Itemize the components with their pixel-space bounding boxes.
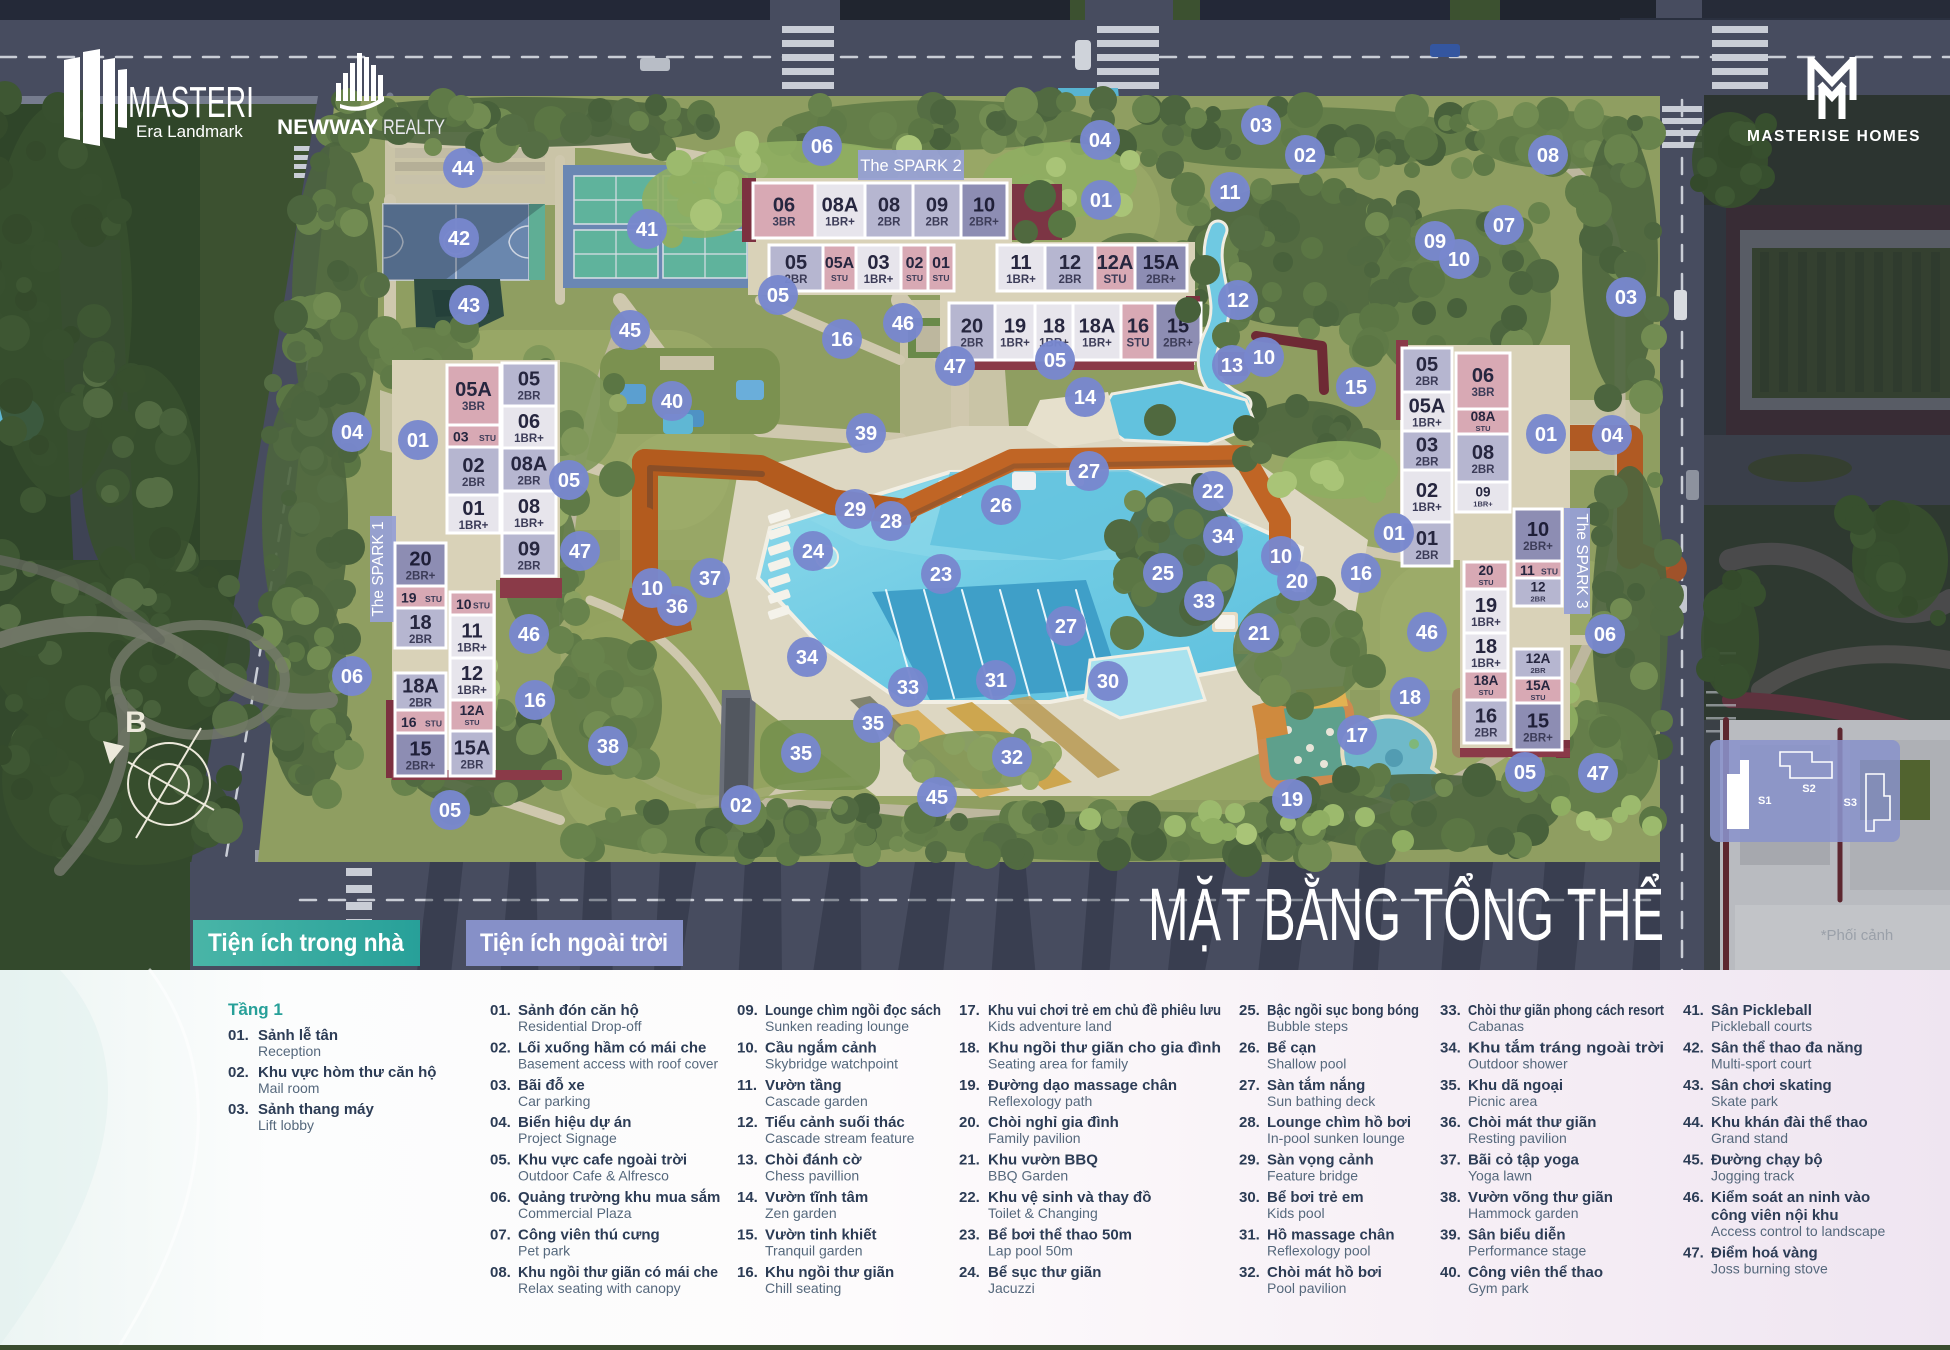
svg-text:Bãi cỏ tập yoga: Bãi cỏ tập yoga <box>1468 1152 1580 1169</box>
svg-text:43: 43 <box>458 295 480 317</box>
svg-text:10.: 10. <box>737 1039 758 1056</box>
svg-text:09.: 09. <box>737 1002 758 1019</box>
svg-text:18A: 18A <box>402 676 439 698</box>
svg-text:Khu tắm tráng ngoài trời: Khu tắm tráng ngoài trời <box>1468 1038 1664 1056</box>
svg-text:Hồ massage chân: Hồ massage chân <box>1267 1226 1395 1243</box>
svg-text:05.: 05. <box>490 1152 511 1169</box>
svg-text:34.: 34. <box>1440 1039 1461 1056</box>
svg-text:04: 04 <box>1089 130 1112 152</box>
svg-text:1BR+: 1BR+ <box>825 217 855 229</box>
svg-text:Sân thể thao đa năng: Sân thể thao đa năng <box>1711 1039 1863 1056</box>
svg-text:47: 47 <box>1587 763 1609 785</box>
svg-text:STU: STU <box>1531 693 1546 702</box>
svg-text:15A: 15A <box>1526 678 1551 693</box>
svg-text:Basement access with roof cove: Basement access with roof cover <box>518 1055 718 1071</box>
svg-text:2BR: 2BR <box>1471 464 1495 476</box>
svg-text:05A: 05A <box>825 255 855 272</box>
svg-text:The SPARK 3: The SPARK 3 <box>1573 513 1590 608</box>
svg-text:2BR: 2BR <box>1415 376 1439 388</box>
svg-text:26: 26 <box>990 495 1012 517</box>
svg-text:17: 17 <box>1346 725 1368 747</box>
svg-text:43.: 43. <box>1683 1077 1704 1094</box>
svg-text:29: 29 <box>844 499 866 521</box>
svg-text:42.: 42. <box>1683 1039 1704 1056</box>
svg-text:06: 06 <box>518 411 540 433</box>
svg-text:2BR: 2BR <box>409 634 433 646</box>
svg-text:02: 02 <box>730 795 752 817</box>
svg-text:15: 15 <box>409 739 431 761</box>
svg-text:Công viên thể thao: Công viên thể thao <box>1468 1264 1603 1281</box>
svg-text:03: 03 <box>453 429 469 445</box>
svg-text:19.: 19. <box>959 1077 980 1094</box>
svg-text:1BR+: 1BR+ <box>1412 418 1442 430</box>
svg-text:Cascade garden: Cascade garden <box>765 1093 868 1109</box>
svg-text:23: 23 <box>930 564 952 586</box>
svg-text:08.: 08. <box>490 1264 511 1281</box>
svg-text:45: 45 <box>619 320 641 342</box>
svg-text:Lounge chìm hồ bơi: Lounge chìm hồ bơi <box>1267 1114 1411 1131</box>
svg-text:Pet park: Pet park <box>518 1242 571 1258</box>
svg-text:Quảng trường khu mua sắm: Quảng trường khu mua sắm <box>518 1188 720 1206</box>
svg-text:STU: STU <box>1476 424 1491 433</box>
svg-text:01: 01 <box>1416 528 1438 550</box>
svg-text:STU: STU <box>1104 274 1127 286</box>
svg-text:35: 35 <box>862 713 884 735</box>
svg-text:3BR: 3BR <box>462 401 486 413</box>
svg-text:10: 10 <box>1448 249 1470 271</box>
svg-text:Chòi nghỉ gia đình: Chòi nghỉ gia đình <box>988 1114 1119 1131</box>
svg-text:Khu vực hòm thư căn hộ: Khu vực hòm thư căn hộ <box>258 1064 436 1081</box>
svg-text:STU: STU <box>1127 338 1150 350</box>
svg-text:16: 16 <box>1127 316 1149 338</box>
svg-text:07: 07 <box>1493 215 1515 237</box>
svg-text:Tiện ích trong nhà: Tiện ích trong nhà <box>208 929 404 957</box>
svg-text:Skate park: Skate park <box>1711 1093 1779 1109</box>
svg-text:20.: 20. <box>959 1114 980 1131</box>
svg-text:11: 11 <box>1219 182 1240 204</box>
svg-text:Vườn võng thư giãn: Vườn võng thư giãn <box>1468 1189 1613 1206</box>
svg-text:47.: 47. <box>1683 1244 1704 1261</box>
svg-text:STU: STU <box>425 719 442 729</box>
svg-text:15: 15 <box>1527 711 1549 733</box>
svg-text:*Phối cảnh: *Phối cảnh <box>1821 927 1894 944</box>
svg-text:Yoga lawn: Yoga lawn <box>1468 1168 1532 1184</box>
svg-text:Jacuzzi: Jacuzzi <box>988 1280 1035 1296</box>
svg-text:03: 03 <box>1250 115 1272 137</box>
svg-text:05: 05 <box>558 470 580 492</box>
svg-text:08A: 08A <box>1471 409 1496 424</box>
svg-text:25: 25 <box>1152 563 1174 585</box>
svg-text:STU: STU <box>1541 567 1558 577</box>
svg-text:03: 03 <box>867 252 889 274</box>
svg-text:Chess pavillion: Chess pavillion <box>765 1168 859 1184</box>
svg-text:Cabanas: Cabanas <box>1468 1018 1524 1034</box>
svg-text:MASTERI: MASTERI <box>128 78 254 127</box>
svg-text:The SPARK 2: The SPARK 2 <box>860 157 962 175</box>
svg-text:Multi-sport court: Multi-sport court <box>1711 1055 1811 1071</box>
svg-text:35.: 35. <box>1440 1077 1461 1094</box>
svg-text:Grand stand: Grand stand <box>1711 1130 1788 1146</box>
svg-text:24: 24 <box>802 541 825 563</box>
svg-text:02: 02 <box>462 455 484 477</box>
svg-text:Bể bơi trẻ em: Bể bơi trẻ em <box>1267 1189 1364 1206</box>
svg-text:1BR+: 1BR+ <box>514 518 544 530</box>
svg-text:2BR: 2BR <box>517 476 541 488</box>
svg-text:05: 05 <box>767 285 789 307</box>
svg-text:Kids pool: Kids pool <box>1267 1205 1325 1221</box>
svg-text:2BR: 2BR <box>1058 274 1082 286</box>
svg-text:08: 08 <box>1472 442 1494 464</box>
svg-text:01.: 01. <box>490 1002 511 1019</box>
svg-text:1BR+: 1BR+ <box>1000 338 1030 350</box>
svg-text:Khu ngồi thư giãn cho gia đình: Khu ngồi thư giãn cho gia đình <box>988 1039 1221 1056</box>
svg-text:36.: 36. <box>1440 1114 1461 1131</box>
svg-text:STU: STU <box>1479 578 1494 587</box>
svg-text:23.: 23. <box>959 1226 980 1243</box>
svg-text:32.: 32. <box>1239 1264 1260 1281</box>
svg-text:30: 30 <box>1097 671 1119 693</box>
svg-text:Bể bơi thể thao 50m: Bể bơi thể thao 50m <box>988 1226 1132 1243</box>
svg-text:08: 08 <box>1537 145 1559 167</box>
svg-text:18: 18 <box>1475 636 1497 658</box>
svg-text:1BR+: 1BR+ <box>459 520 489 532</box>
svg-text:05: 05 <box>439 800 461 822</box>
svg-text:1BR+: 1BR+ <box>1412 502 1442 514</box>
svg-text:Sân chơi skating: Sân chơi skating <box>1711 1077 1832 1094</box>
svg-text:2BR+: 2BR+ <box>406 571 436 583</box>
svg-text:19: 19 <box>1004 316 1026 338</box>
svg-text:18: 18 <box>1399 687 1421 709</box>
svg-text:Era Landmark: Era Landmark <box>136 122 243 141</box>
svg-text:05A: 05A <box>1409 396 1446 418</box>
svg-text:Pool pavilion: Pool pavilion <box>1267 1280 1346 1296</box>
svg-text:44: 44 <box>452 158 475 180</box>
svg-text:MẶT BẰNG TỔNG THỂ: MẶT BẰNG TỔNG THỂ <box>1148 873 1664 956</box>
svg-text:NEWWAY: NEWWAY <box>277 116 378 139</box>
svg-text:41.: 41. <box>1683 1002 1704 1019</box>
svg-text:13: 13 <box>1221 355 1243 377</box>
svg-text:33: 33 <box>1193 591 1215 613</box>
svg-text:03: 03 <box>1416 435 1438 457</box>
svg-text:01.: 01. <box>228 1027 249 1044</box>
svg-text:14: 14 <box>1074 387 1097 409</box>
svg-text:05: 05 <box>1416 354 1438 376</box>
svg-text:33.: 33. <box>1440 1002 1461 1019</box>
svg-text:Vườn tinh khiết: Vườn tinh khiết <box>765 1226 877 1243</box>
svg-text:1BR+: 1BR+ <box>514 433 544 445</box>
svg-text:Bể cạn: Bể cạn <box>1267 1039 1316 1056</box>
svg-text:2BR: 2BR <box>925 217 949 229</box>
svg-text:2BR: 2BR <box>462 477 486 489</box>
svg-text:16: 16 <box>1350 563 1372 585</box>
svg-text:2BR+: 2BR+ <box>1146 274 1176 286</box>
svg-text:16.: 16. <box>737 1264 758 1281</box>
svg-text:12A: 12A <box>1526 651 1551 666</box>
svg-text:Skybridge watchpoint: Skybridge watchpoint <box>765 1055 898 1071</box>
svg-text:15.: 15. <box>737 1226 758 1243</box>
svg-text:Performance stage: Performance stage <box>1468 1242 1586 1258</box>
svg-text:18: 18 <box>409 612 431 634</box>
svg-text:11: 11 <box>1520 562 1535 578</box>
svg-text:1BR+: 1BR+ <box>1473 500 1493 509</box>
svg-text:2BR+: 2BR+ <box>1523 541 1553 553</box>
svg-text:2BR+: 2BR+ <box>969 217 999 229</box>
svg-text:2BR: 2BR <box>1530 595 1546 604</box>
svg-text:Sân biểu diễn: Sân biểu diễn <box>1468 1226 1566 1243</box>
svg-text:2BR+: 2BR+ <box>406 761 436 773</box>
svg-text:2BR: 2BR <box>1415 457 1439 469</box>
svg-text:05: 05 <box>518 369 540 391</box>
svg-text:12.: 12. <box>737 1114 758 1131</box>
svg-text:Commercial Plaza: Commercial Plaza <box>518 1205 632 1221</box>
svg-text:2BR: 2BR <box>1415 550 1439 562</box>
svg-text:33: 33 <box>897 677 919 699</box>
svg-text:04: 04 <box>1601 425 1624 447</box>
svg-text:STU: STU <box>479 433 496 443</box>
svg-text:Sảnh lễ tân: Sảnh lễ tân <box>258 1027 338 1044</box>
svg-text:Kiểm soát an ninh vào: Kiểm soát an ninh vào <box>1711 1189 1870 1206</box>
svg-text:Chòi mát thư giãn: Chòi mát thư giãn <box>1468 1114 1596 1131</box>
svg-text:Khu ngồi thư giãn: Khu ngồi thư giãn <box>765 1264 894 1281</box>
svg-text:16: 16 <box>524 690 546 712</box>
svg-text:19: 19 <box>1281 789 1303 811</box>
svg-text:1BR+: 1BR+ <box>1471 617 1501 629</box>
svg-text:10: 10 <box>1253 347 1275 369</box>
svg-text:27: 27 <box>1078 461 1100 483</box>
svg-text:1BR+: 1BR+ <box>457 685 487 697</box>
svg-text:2BR+: 2BR+ <box>1523 733 1553 745</box>
svg-text:15A: 15A <box>1143 252 1180 274</box>
svg-text:Chòi thư giãn phong cách resor: Chòi thư giãn phong cách resort <box>1468 1002 1664 1019</box>
svg-text:Khu vệ sinh và thay đồ: Khu vệ sinh và thay đồ <box>988 1189 1151 1206</box>
svg-text:Tiểu cảnh suối thác: Tiểu cảnh suối thác <box>765 1114 905 1131</box>
svg-text:01: 01 <box>1535 424 1557 446</box>
svg-text:STU: STU <box>1479 688 1494 697</box>
svg-text:Chill seating: Chill seating <box>765 1280 841 1296</box>
svg-text:01: 01 <box>1383 523 1405 545</box>
svg-text:Bubble steps: Bubble steps <box>1267 1018 1348 1034</box>
svg-text:46: 46 <box>518 624 540 646</box>
svg-text:Khu dã ngoại: Khu dã ngoại <box>1468 1077 1563 1094</box>
svg-text:Vườn tĩnh tâm: Vườn tĩnh tâm <box>765 1189 868 1206</box>
svg-text:Lối xuống hầm có mái che: Lối xuống hầm có mái che <box>518 1039 706 1056</box>
svg-text:Pickleball courts: Pickleball courts <box>1711 1018 1812 1034</box>
svg-text:12A: 12A <box>460 703 485 718</box>
svg-text:Khu vực cafe ngoài trời: Khu vực cafe ngoài trời <box>518 1152 687 1169</box>
svg-text:Sun bathing deck: Sun bathing deck <box>1267 1093 1376 1109</box>
svg-text:02.: 02. <box>228 1064 249 1081</box>
svg-text:công viên nội khu: công viên nội khu <box>1711 1207 1839 1224</box>
svg-text:35: 35 <box>790 743 812 765</box>
svg-text:18.: 18. <box>959 1039 980 1056</box>
svg-text:Sảnh đón căn hộ: Sảnh đón căn hộ <box>518 1002 639 1019</box>
svg-text:20: 20 <box>961 316 983 338</box>
svg-text:Điểm hoá vàng: Điểm hoá vàng <box>1711 1244 1818 1261</box>
svg-text:16: 16 <box>831 329 853 351</box>
svg-text:06: 06 <box>773 195 795 217</box>
svg-text:2BR: 2BR <box>1474 728 1498 740</box>
svg-text:06: 06 <box>811 136 833 158</box>
svg-text:Đường dạo massage chân: Đường dạo massage chân <box>988 1077 1177 1094</box>
svg-text:05A: 05A <box>455 379 492 401</box>
svg-text:02.: 02. <box>490 1039 511 1056</box>
svg-text:36: 36 <box>666 596 688 618</box>
svg-text:Bãi đỗ xe: Bãi đỗ xe <box>518 1077 585 1094</box>
svg-text:37.: 37. <box>1440 1152 1461 1169</box>
svg-text:47: 47 <box>569 541 591 563</box>
svg-text:Công viên thú cưng: Công viên thú cưng <box>518 1226 660 1243</box>
svg-text:04: 04 <box>341 422 364 444</box>
svg-text:Hammock garden: Hammock garden <box>1468 1205 1579 1221</box>
svg-text:Relax seating with canopy: Relax seating with canopy <box>518 1280 681 1296</box>
svg-text:Lift lobby: Lift lobby <box>258 1117 314 1133</box>
svg-text:Toilet & Changing: Toilet & Changing <box>988 1205 1098 1221</box>
svg-text:40: 40 <box>661 391 683 413</box>
svg-text:06: 06 <box>341 666 363 688</box>
svg-text:Reflexology path: Reflexology path <box>988 1093 1092 1109</box>
svg-text:Sunken reading lounge: Sunken reading lounge <box>765 1018 909 1034</box>
svg-text:Feature bridge: Feature bridge <box>1267 1168 1358 1184</box>
svg-text:1BR+: 1BR+ <box>864 274 894 286</box>
svg-text:Cầu ngắm cảnh: Cầu ngắm cảnh <box>765 1038 877 1056</box>
svg-text:STU: STU <box>906 273 923 283</box>
svg-text:18A: 18A <box>1474 673 1499 688</box>
svg-text:BBQ Garden: BBQ Garden <box>988 1168 1068 1184</box>
svg-text:2BR: 2BR <box>877 217 901 229</box>
svg-text:Shallow pool: Shallow pool <box>1267 1055 1346 1071</box>
svg-text:01: 01 <box>1090 190 1112 212</box>
svg-text:STU: STU <box>465 718 480 727</box>
svg-text:09: 09 <box>926 195 948 217</box>
svg-text:Lounge chìm ngồi đọc sách: Lounge chìm ngồi đọc sách <box>765 1002 941 1019</box>
svg-text:12: 12 <box>1227 290 1249 312</box>
svg-text:15: 15 <box>1345 377 1367 399</box>
svg-text:03: 03 <box>1615 287 1637 309</box>
svg-text:10: 10 <box>456 596 472 612</box>
svg-text:20: 20 <box>409 549 431 571</box>
svg-text:10: 10 <box>973 195 995 217</box>
svg-text:11.: 11. <box>737 1077 757 1094</box>
svg-text:1BR+: 1BR+ <box>457 643 487 655</box>
svg-text:Reception: Reception <box>258 1043 321 1059</box>
svg-text:2BR: 2BR <box>1530 666 1546 675</box>
svg-text:03.: 03. <box>228 1101 249 1118</box>
svg-text:01: 01 <box>407 430 429 452</box>
svg-text:Khu vườn BBQ: Khu vườn BBQ <box>988 1152 1098 1169</box>
svg-text:08A: 08A <box>511 454 548 476</box>
svg-text:Residential Drop-off: Residential Drop-off <box>518 1018 642 1034</box>
svg-text:Bể sục thư giãn: Bể sục thư giãn <box>988 1264 1101 1281</box>
svg-text:20: 20 <box>1286 571 1308 593</box>
svg-text:08: 08 <box>878 195 900 217</box>
svg-text:The SPARK 1: The SPARK 1 <box>370 521 387 616</box>
svg-text:34: 34 <box>1212 526 1235 548</box>
svg-text:13.: 13. <box>737 1152 758 1169</box>
svg-text:32: 32 <box>1001 747 1023 769</box>
svg-text:31.: 31. <box>1239 1226 1260 1243</box>
svg-text:46: 46 <box>1416 622 1438 644</box>
svg-text:2BR: 2BR <box>960 338 984 350</box>
svg-text:08A: 08A <box>822 195 859 217</box>
svg-text:02: 02 <box>1416 480 1438 502</box>
svg-text:03.: 03. <box>490 1077 511 1094</box>
svg-text:STU: STU <box>831 273 848 283</box>
svg-text:20: 20 <box>1478 563 1493 578</box>
svg-text:Cascade stream feature: Cascade stream feature <box>765 1130 915 1146</box>
svg-text:2BR: 2BR <box>460 760 484 772</box>
svg-text:12: 12 <box>1530 580 1545 595</box>
svg-text:05: 05 <box>785 252 807 274</box>
svg-text:2BR: 2BR <box>517 391 541 403</box>
svg-text:12: 12 <box>461 663 483 685</box>
svg-text:1BR+: 1BR+ <box>1006 274 1036 286</box>
svg-text:15A: 15A <box>454 738 491 760</box>
svg-text:Chòi mát hồ bơi: Chòi mát hồ bơi <box>1267 1264 1382 1281</box>
svg-text:05: 05 <box>1514 762 1536 784</box>
svg-text:S1: S1 <box>1758 795 1771 807</box>
svg-text:Khu khán đài thể thao: Khu khán đài thể thao <box>1711 1114 1868 1131</box>
svg-text:Sàn tắm nắng: Sàn tắm nắng <box>1267 1076 1365 1094</box>
svg-text:Family pavilion: Family pavilion <box>988 1130 1081 1146</box>
svg-text:Tiện ích ngoài trời: Tiện ích ngoài trời <box>480 929 668 957</box>
svg-text:25.: 25. <box>1239 1002 1260 1019</box>
svg-text:Vườn tầng: Vườn tầng <box>765 1077 842 1094</box>
svg-text:22: 22 <box>1202 481 1224 503</box>
svg-text:Sảnh thang máy: Sảnh thang máy <box>258 1101 375 1118</box>
svg-text:19: 19 <box>1475 595 1497 617</box>
svg-text:14.: 14. <box>737 1189 758 1206</box>
svg-text:27.: 27. <box>1239 1077 1260 1094</box>
svg-text:1BR+: 1BR+ <box>1471 658 1501 670</box>
svg-text:45: 45 <box>926 787 948 809</box>
svg-text:Outdoor Cafe & Alfresco: Outdoor Cafe & Alfresco <box>518 1168 669 1184</box>
svg-text:Zen garden: Zen garden <box>765 1205 837 1221</box>
svg-text:3BR: 3BR <box>1471 387 1495 399</box>
svg-text:24.: 24. <box>959 1264 980 1281</box>
svg-text:09: 09 <box>1475 485 1490 500</box>
svg-text:S2: S2 <box>1802 783 1815 795</box>
svg-text:Reflexology pool: Reflexology pool <box>1267 1242 1371 1258</box>
svg-text:46.: 46. <box>1683 1189 1704 1206</box>
svg-text:45.: 45. <box>1683 1152 1704 1169</box>
svg-text:2BR+: 2BR+ <box>1163 338 1193 350</box>
svg-text:STU: STU <box>473 601 490 611</box>
svg-text:26.: 26. <box>1239 1039 1260 1056</box>
svg-text:06.: 06. <box>490 1189 511 1206</box>
svg-text:38: 38 <box>597 736 619 758</box>
svg-text:21.: 21. <box>959 1152 980 1169</box>
svg-text:12: 12 <box>1059 252 1081 274</box>
svg-text:STU: STU <box>425 594 442 604</box>
svg-text:STU: STU <box>933 273 950 283</box>
svg-text:Tầng 1: Tầng 1 <box>228 1000 283 1019</box>
svg-text:10: 10 <box>1527 519 1549 541</box>
svg-text:29.: 29. <box>1239 1152 1260 1169</box>
svg-text:16: 16 <box>1475 706 1497 728</box>
svg-text:2BR: 2BR <box>409 698 433 710</box>
svg-text:S3: S3 <box>1844 797 1857 809</box>
svg-text:41: 41 <box>636 219 658 241</box>
svg-text:2BR: 2BR <box>517 561 541 573</box>
svg-text:Seating area for family: Seating area for family <box>988 1055 1128 1071</box>
svg-text:11: 11 <box>1010 252 1031 274</box>
svg-text:Đường chạy bộ: Đường chạy bộ <box>1711 1152 1823 1169</box>
svg-text:Project Signage: Project Signage <box>518 1130 617 1146</box>
svg-text:38.: 38. <box>1440 1189 1461 1206</box>
svg-text:Joss burning stove: Joss burning stove <box>1711 1260 1828 1276</box>
svg-text:30.: 30. <box>1239 1189 1260 1206</box>
svg-text:11: 11 <box>461 621 482 643</box>
